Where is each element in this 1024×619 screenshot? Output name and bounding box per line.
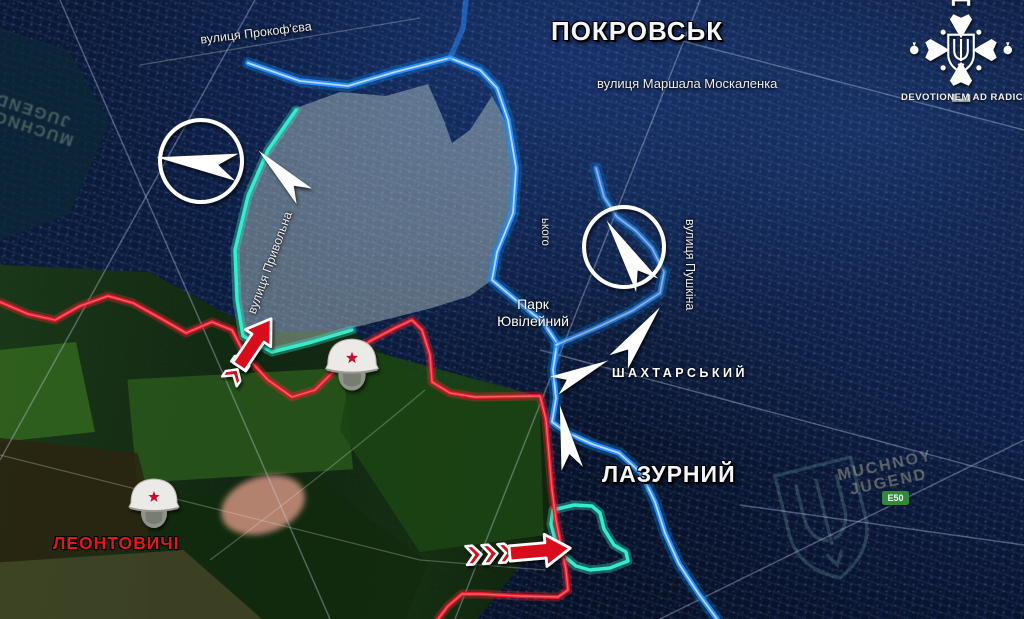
city-label-pokrovsk: ПОКРОВСЬК: [551, 16, 723, 47]
logo-motto: DEVOTIONEM AD RADICES: [901, 92, 1023, 103]
park-label-line1: Парк: [468, 296, 598, 313]
war-situation-map: ПОКРОВСЬК вулиця Прокоф'єва вулиця Марша…: [0, 0, 1024, 619]
park-label: Парк Ювілейний: [468, 296, 598, 330]
soviet-helmet-icon: [326, 339, 379, 390]
movement-arrow-icon: [155, 144, 238, 181]
street-label-fragment: ького: [539, 182, 551, 282]
street-label-pushkina: вулиця Пушкіна: [683, 219, 697, 339]
park-label-line2: Ювілейний: [468, 313, 598, 330]
district-label-lazurnyi: ЛАЗУРНИЙ: [602, 461, 736, 488]
soviet-helmet-icon: [129, 479, 179, 528]
road-badge-e50: E50: [882, 491, 909, 505]
unit-emblem-logo: [910, 0, 1012, 100]
village-label-leontovychi: ЛЕОНТОВИЧІ: [53, 533, 179, 554]
movement-circle-west: [155, 120, 242, 202]
street-label-moskalenka: вулиця Маршала Москаленка: [597, 76, 777, 91]
district-label-shakhtarskyi: ШАХТАРСЬКИЙ: [612, 366, 748, 380]
